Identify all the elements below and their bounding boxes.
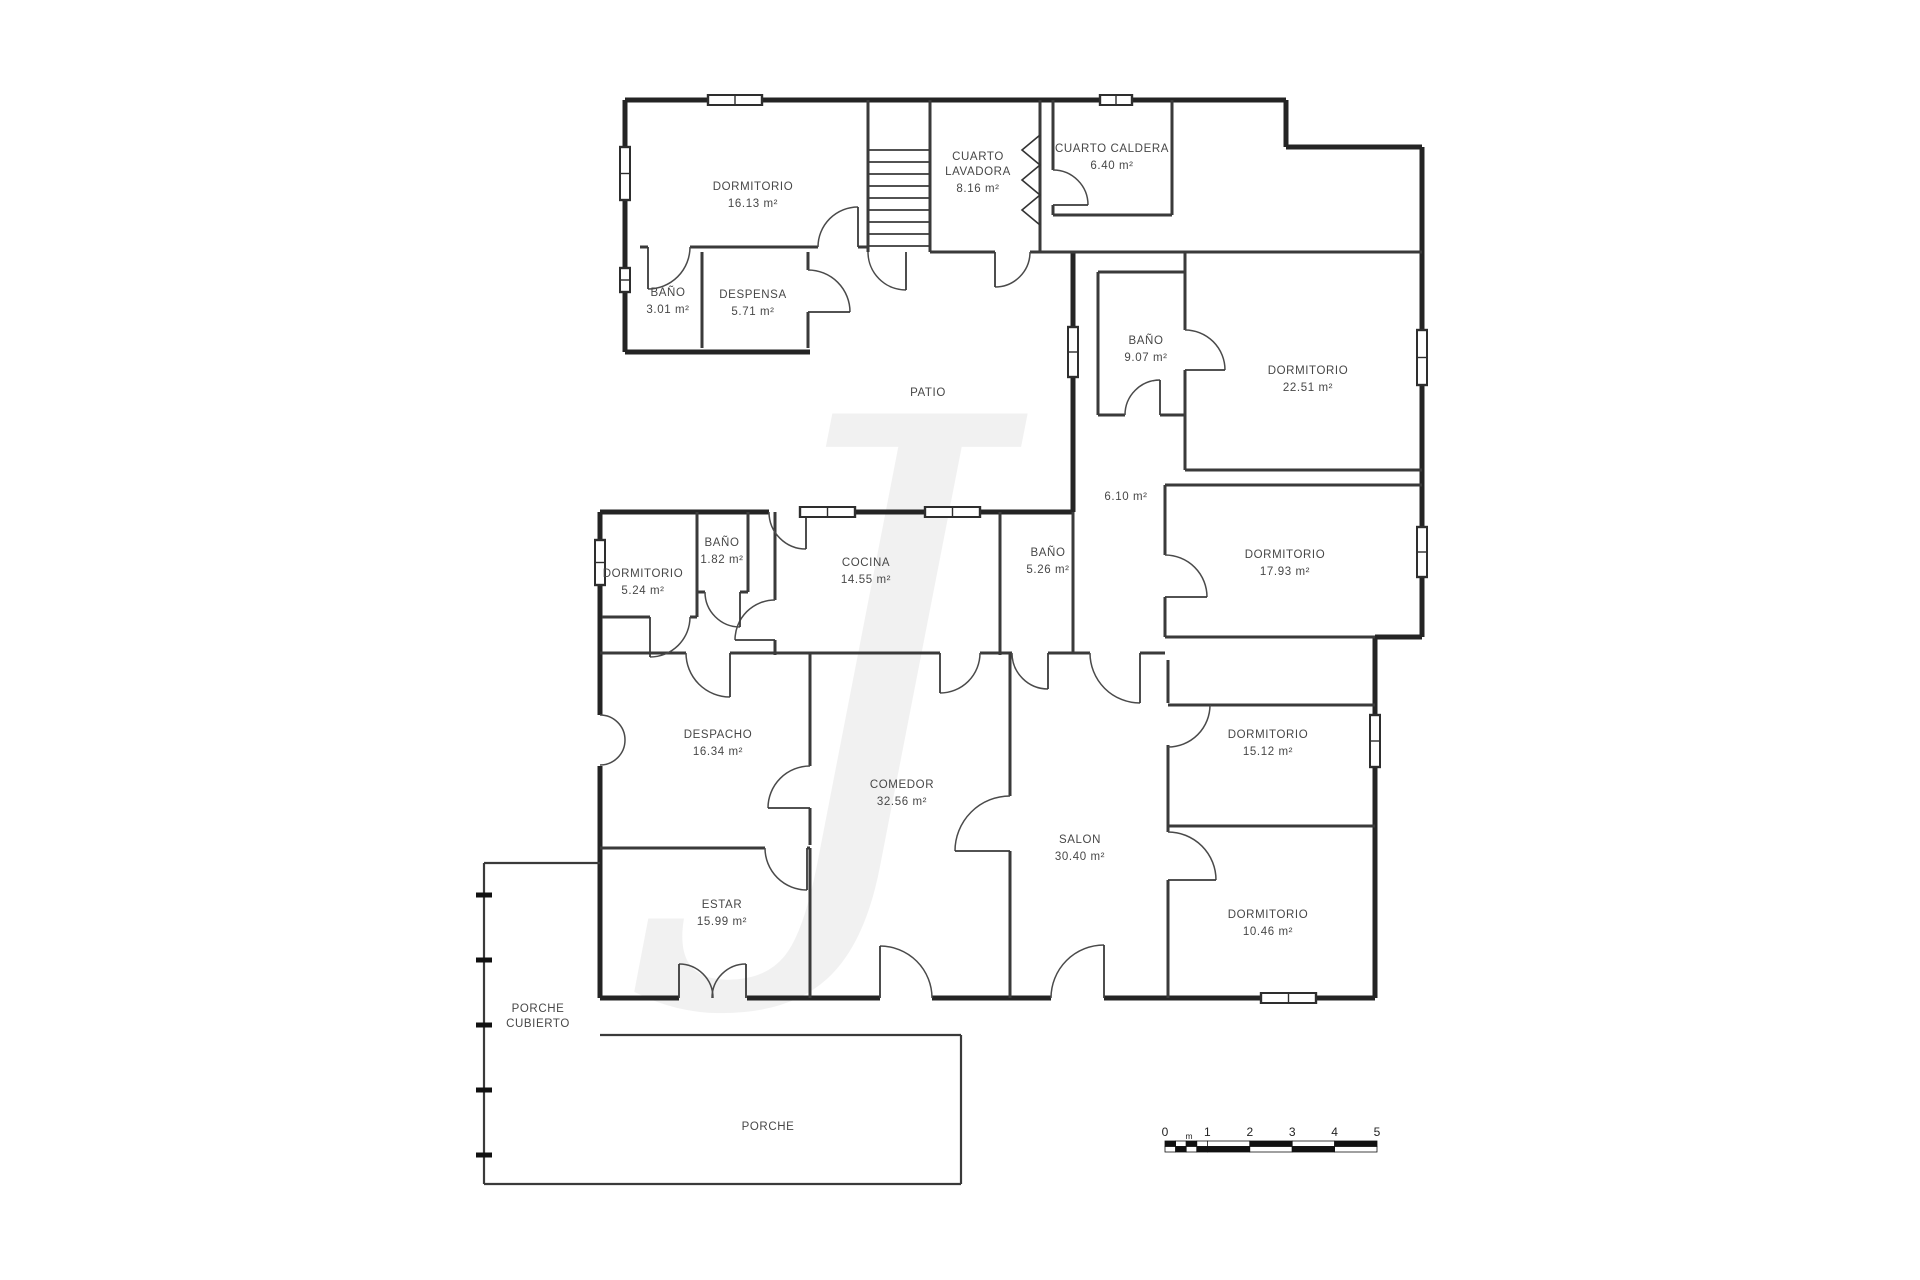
scale-bar: 012345m: [1162, 1125, 1381, 1152]
door-arc: [1125, 380, 1160, 415]
door-arc: [1168, 705, 1210, 747]
room-area: 6.40 m²: [1090, 160, 1133, 172]
scale-bar-segment: [1165, 1147, 1176, 1153]
scale-bar-segment: [1207, 1147, 1249, 1153]
room-area: 22.51 m²: [1283, 382, 1333, 394]
room-name-line: DORMITORIO: [1268, 365, 1349, 377]
door-arc: [600, 740, 625, 765]
window-symbol: [800, 506, 855, 518]
room-name-line: BAÑO: [1129, 334, 1164, 347]
boiler-symbol: [1022, 135, 1040, 225]
room-label-bano-9-07: BAÑO9.07 m²: [1124, 334, 1167, 364]
window-symbol: [1067, 327, 1079, 377]
room-area: 9.07 m²: [1124, 352, 1167, 364]
room-name-line: PATIO: [910, 387, 946, 399]
room-name-line: ESTAR: [702, 899, 743, 911]
room-label-dormitorio-22-51: DORMITORIO22.51 m²: [1268, 365, 1349, 394]
room-label-dormitorio-10-46: DORMITORIO10.46 m²: [1228, 909, 1309, 938]
staircase: [868, 150, 930, 246]
room-name-line: DORMITORIO: [1245, 549, 1326, 561]
room-name-line: PORCHE: [742, 1121, 795, 1133]
door-arc: [648, 247, 690, 289]
scale-bar-segment: [1292, 1141, 1334, 1147]
scale-tick-label-1: 1: [1204, 1125, 1211, 1139]
door-arc: [1165, 555, 1207, 597]
room-area: 5.24 m²: [621, 585, 664, 597]
scale-bar-segment: [1176, 1147, 1187, 1153]
room-name-line: COMEDOR: [870, 779, 934, 791]
room-area: 5.71 m²: [731, 306, 774, 318]
room-area: 5.26 m²: [1026, 564, 1069, 576]
room-label-patio: PATIO: [910, 387, 946, 399]
room-name-line: DORMITORIO: [603, 568, 684, 580]
room-label-estar: ESTAR15.99 m²: [697, 899, 747, 928]
room-name-line: DESPENSA: [719, 289, 786, 301]
scale-bar-segment: [1197, 1147, 1208, 1153]
room-name-line: DORMITORIO: [1228, 729, 1309, 741]
floor-plan-drawing: J DORMITORIO16.13 m²CUARTOLAVADORA8.16 m…: [0, 0, 1920, 1280]
window-symbol: [1261, 992, 1316, 1004]
door-arc: [1012, 653, 1048, 689]
scale-bar-segment: [1207, 1141, 1249, 1147]
window-symbol: [925, 506, 980, 518]
door-arc: [1053, 170, 1088, 205]
door-arc: [600, 715, 625, 740]
scale-tick-label-5: 5: [1374, 1125, 1381, 1139]
room-area: 16.13 m²: [728, 198, 778, 210]
boiler-zigzag-icon: [1022, 135, 1040, 225]
scale-tick-label-0: 0: [1162, 1125, 1169, 1139]
room-label-distribuidor: 6.10 m²: [1104, 491, 1147, 503]
door-arc: [868, 252, 906, 290]
door-arc: [705, 592, 740, 627]
room-label-bano-1-82: BAÑO1.82 m²: [700, 536, 743, 566]
room-area: 32.56 m²: [877, 796, 927, 808]
door-arc: [1090, 653, 1140, 703]
scale-tick-label-3: 3: [1289, 1125, 1296, 1139]
room-label-cuarto-caldera: CUARTO CALDERA6.40 m²: [1055, 143, 1169, 172]
room-name-line: CUBIERTO: [506, 1018, 570, 1030]
scale-unit-label: m: [1185, 1131, 1192, 1141]
door-arc: [679, 964, 713, 998]
room-name-line: CUARTO CALDERA: [1055, 143, 1169, 155]
window-symbol: [619, 268, 631, 292]
scale-bar-segment: [1186, 1141, 1197, 1147]
scale-tick-label-4: 4: [1331, 1125, 1338, 1139]
room-label-dormitorio-17-93: DORMITORIO17.93 m²: [1245, 549, 1326, 578]
scale-bar-segment: [1335, 1147, 1377, 1153]
window-symbol: [1369, 715, 1381, 767]
scale-bar-segment: [1335, 1141, 1377, 1147]
room-name-line: COCINA: [842, 557, 890, 569]
room-label-porche: PORCHE: [742, 1121, 795, 1133]
room-area: 3.01 m²: [646, 304, 689, 316]
window-symbol: [1100, 94, 1132, 106]
scale-bar-segment: [1176, 1141, 1187, 1147]
scale-bar-segment: [1250, 1147, 1292, 1153]
scale-bar-segment: [1292, 1147, 1334, 1153]
room-name-line: LAVADORA: [945, 166, 1011, 178]
room-area: 14.55 m²: [841, 574, 891, 586]
door-arc: [1185, 330, 1225, 370]
room-name-line: CUARTO: [952, 151, 1004, 163]
door-arc: [650, 617, 690, 657]
room-name-line: BAÑO: [705, 536, 740, 549]
room-label-cuarto-lavadora: CUARTOLAVADORA8.16 m²: [945, 151, 1011, 195]
floor-plan-page: J DORMITORIO16.13 m²CUARTOLAVADORA8.16 m…: [0, 0, 1920, 1280]
room-name-line: DORMITORIO: [713, 181, 794, 193]
door-arc: [1051, 945, 1104, 998]
room-area: 15.99 m²: [697, 916, 747, 928]
window-symbol: [1416, 330, 1428, 385]
room-label-bano-3-01: BAÑO3.01 m²: [646, 286, 689, 316]
room-label-salon: SALON30.40 m²: [1055, 834, 1105, 863]
room-name-line: BAÑO: [1031, 546, 1066, 559]
room-area: 6.10 m²: [1104, 491, 1147, 503]
door-arc: [1168, 832, 1216, 880]
door-arc: [818, 207, 858, 247]
scale-tick-label-2: 2: [1246, 1125, 1253, 1139]
room-area: 8.16 m²: [956, 183, 999, 195]
room-name-line: BAÑO: [651, 286, 686, 299]
room-label-porche-cubierto: PORCHECUBIERTO: [506, 1003, 570, 1030]
door-arc: [686, 653, 730, 697]
room-label-dormitorio-16: DORMITORIO16.13 m²: [713, 181, 794, 210]
room-name-line: SALON: [1059, 834, 1101, 846]
room-area: 16.34 m²: [693, 746, 743, 758]
window-symbol: [1416, 527, 1428, 577]
room-area: 1.82 m²: [700, 554, 743, 566]
room-label-dormitorio-5-24: DORMITORIO5.24 m²: [603, 568, 684, 597]
window-symbol: [619, 147, 631, 200]
scale-bar-segment: [1165, 1141, 1176, 1147]
window-symbol: [708, 94, 762, 106]
room-name-line: DESPACHO: [684, 729, 753, 741]
room-name-line: PORCHE: [512, 1003, 565, 1015]
scale-bar-segment: [1250, 1141, 1292, 1147]
scale-bar-segment: [1197, 1141, 1208, 1147]
room-area: 15.12 m²: [1243, 746, 1293, 758]
room-area: 10.46 m²: [1243, 926, 1293, 938]
room-area: 17.93 m²: [1260, 566, 1310, 578]
room-name-line: DORMITORIO: [1228, 909, 1309, 921]
door-arc: [995, 252, 1030, 287]
scale-bar-segment: [1186, 1147, 1197, 1153]
room-label-dormitorio-15-12: DORMITORIO15.12 m²: [1228, 729, 1309, 758]
room-label-bano-5-26: BAÑO5.26 m²: [1026, 546, 1069, 576]
room-area: 30.40 m²: [1055, 851, 1105, 863]
watermark: J: [632, 286, 1032, 1031]
